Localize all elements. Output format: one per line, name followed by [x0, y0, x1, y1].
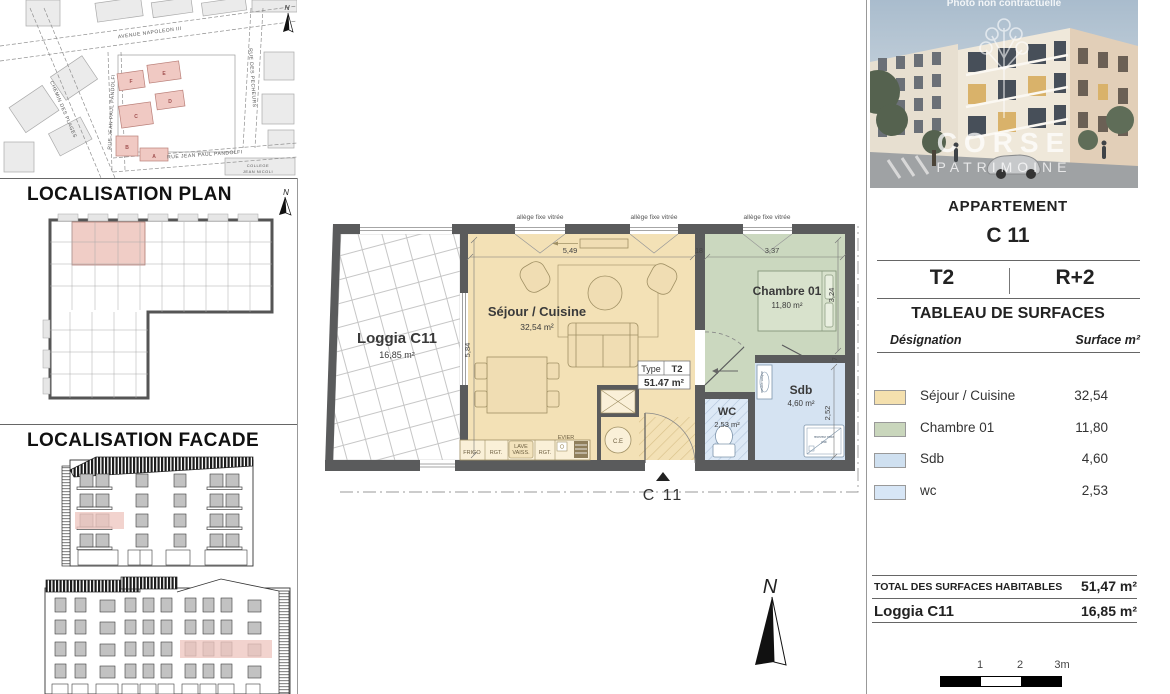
- scale-tick-3: 3m: [1048, 659, 1076, 671]
- sink: [557, 442, 567, 451]
- surface-swatch-wc: [874, 485, 906, 500]
- loggia-name: Loggia C11: [357, 330, 437, 347]
- column-surface: Surface m²: [1040, 333, 1140, 347]
- sofa: [568, 323, 638, 367]
- oven: [574, 441, 588, 458]
- loggia-total-label: Loggia C11: [874, 603, 954, 620]
- left-divider-1: [0, 178, 297, 179]
- surfaces-table-title: TABLEAU DE SURFACES: [877, 305, 1139, 323]
- window-label-3: allège fixe vitrée: [744, 214, 791, 221]
- panel-line-2: [877, 298, 1140, 299]
- facade-top: [62, 457, 253, 566]
- scale-tick-1: 1: [966, 659, 994, 671]
- chair: [547, 363, 559, 379]
- type-box-area: 51.47 m²: [644, 378, 685, 389]
- dim-chambre-width: 3,37: [765, 246, 780, 255]
- facade-top-highlight: [75, 512, 124, 529]
- panel-line-3: [877, 352, 1140, 353]
- chair: [547, 391, 559, 407]
- facade-drawings: [0, 452, 297, 694]
- wc-area: 2,53 m²: [714, 420, 740, 429]
- water-heater-label: C.E: [613, 439, 623, 445]
- left-column-border: [297, 178, 298, 694]
- site-building-c: C: [134, 114, 138, 120]
- type-box-label: Type: [641, 364, 661, 374]
- surface-value-wc: 2,53: [1040, 483, 1108, 498]
- total-line-bottom: [872, 622, 1137, 623]
- building-render-photo: CORSE PATRIMOINE Photo non contractuelle: [870, 0, 1138, 188]
- pillow: [825, 303, 833, 327]
- floor-overview-plan: [0, 210, 297, 424]
- loggia-area: 16,85 m²: [379, 350, 415, 360]
- kitchen-label-rgt1: RGT.: [490, 450, 503, 456]
- window-label-2: allège fixe vitrée: [631, 214, 678, 221]
- apartment-title: APPARTEMENT: [877, 198, 1139, 215]
- kitchen-label-evier: EVIER: [558, 435, 575, 441]
- facade-section-title: LOCALISATION FACADE: [27, 430, 259, 452]
- shower: receveur extra plat: [804, 425, 844, 457]
- entrance-arrow: [656, 472, 670, 481]
- dining-table: [487, 357, 547, 413]
- column-designation: Désignation: [890, 333, 962, 347]
- plan-north-label: N: [283, 188, 289, 197]
- chair: [475, 391, 487, 407]
- dim-sejour-width: 5,49: [563, 246, 578, 255]
- coffee-table: [588, 276, 622, 310]
- chair: [475, 363, 487, 379]
- site-building-a: A: [152, 154, 156, 160]
- room-loggia: [333, 234, 460, 460]
- sejour-area: 32,54 m²: [520, 322, 554, 332]
- site-building-f: F: [129, 79, 132, 85]
- chambre-name: Chambre 01: [753, 284, 822, 298]
- site-building-b: B: [125, 145, 129, 151]
- surface-label-wc: wc: [920, 483, 937, 498]
- surface-swatch-sdb: [874, 453, 906, 468]
- panel-line-1: [877, 260, 1140, 261]
- wc-name: WC: [718, 406, 736, 418]
- overview-highlighted-unit: [72, 222, 145, 265]
- dim-chambre-height: 3,24: [827, 288, 836, 303]
- shower-label-1: receveur extra: [814, 435, 835, 439]
- total-line-mid: [872, 598, 1137, 599]
- left-divider-2: [0, 424, 297, 425]
- facade-bottom-roof-mid: [121, 577, 177, 589]
- type-box: Type T2 51.47 m²: [638, 361, 690, 389]
- surface-swatch-sejour: [874, 390, 906, 405]
- entry-hall-hatch: [639, 417, 695, 460]
- floorplan-north-label: N: [763, 576, 778, 598]
- total-surfaces-value: 51,47 m²: [1040, 578, 1137, 594]
- floorplan-north-arrow: N: [755, 576, 786, 665]
- right-column-border: [866, 0, 867, 694]
- surface-value-chambre: 11,80: [1040, 420, 1108, 435]
- plan-sheet: F E D C B A AVENUE NAPOLEON III CHEMIN D…: [0, 0, 1170, 694]
- type-box-value: T2: [671, 364, 682, 375]
- college-label-2: JEAN NICOLI: [243, 169, 273, 174]
- watermark-corse: CORSE: [937, 127, 1072, 158]
- kitchen-label-vaiss: VAISS.: [512, 450, 530, 456]
- window-label-1: allège fixe vitrée: [517, 214, 564, 221]
- surface-swatch-chambre: [874, 422, 906, 437]
- total-line-top: [872, 575, 1137, 576]
- facade-bottom-highlight: [180, 640, 272, 658]
- college-label-1: COLLEGE: [247, 163, 269, 168]
- surface-value-sejour: 32,54: [1040, 388, 1108, 403]
- scale-bar-segments: [940, 676, 1062, 687]
- washbasin-label: meuble vasque: [760, 371, 764, 393]
- dim-sejour-height: 5,84: [463, 343, 472, 358]
- photo-caption: Photo non contractuelle: [947, 0, 1062, 9]
- entrance-label: C 11: [643, 487, 684, 504]
- surface-label-sejour: Séjour / Cuisine: [920, 388, 1015, 403]
- washbasin: meuble vasque: [757, 365, 772, 399]
- surface-value-sdb: 4,60: [1040, 451, 1108, 466]
- chambre-area: 11,80 m²: [772, 301, 803, 310]
- shower-label-2: plat: [821, 440, 826, 444]
- kitchen-label-rgt2: RGT.: [539, 450, 552, 456]
- apartment-type: T2: [877, 266, 1007, 290]
- surface-label-chambre: Chambre 01: [920, 420, 994, 435]
- sejour-name: Séjour / Cuisine: [488, 304, 586, 319]
- entrance-marker: C 11: [643, 472, 684, 504]
- sdb-area: 4,60 m²: [787, 399, 814, 408]
- dim-wall: 18: [695, 248, 703, 255]
- apartment-unit: C 11: [877, 224, 1139, 248]
- loggia-total-value: 16,85 m²: [1040, 603, 1137, 619]
- facade-bottom: [45, 577, 290, 694]
- dim-sdb-height: 2,52: [823, 406, 832, 421]
- apartment-floorplan: FRIGO RGT. LAVE VAISS. RGT. EVIER: [300, 195, 866, 694]
- plan-section-title: LOCALISATION PLAN: [27, 184, 232, 206]
- kitchen-label-frigo: FRIGO: [463, 450, 481, 456]
- scale-tick-2: 2: [1006, 659, 1034, 671]
- facade-bottom-roof-right: [177, 579, 279, 592]
- surface-label-sdb: Sdb: [920, 451, 944, 466]
- site-map: F E D C B A AVENUE NAPOLEON III CHEMIN D…: [0, 0, 297, 178]
- sdb-name: Sdb: [790, 383, 813, 397]
- site-building-d: D: [168, 99, 172, 105]
- total-surfaces-label: TOTAL DES SURFACES HABITABLES: [874, 581, 1062, 593]
- apartment-floor: R+2: [1010, 266, 1140, 290]
- facade-bottom-ground: [52, 684, 260, 694]
- watermark-patrimoine: PATRIMOINE: [936, 159, 1071, 175]
